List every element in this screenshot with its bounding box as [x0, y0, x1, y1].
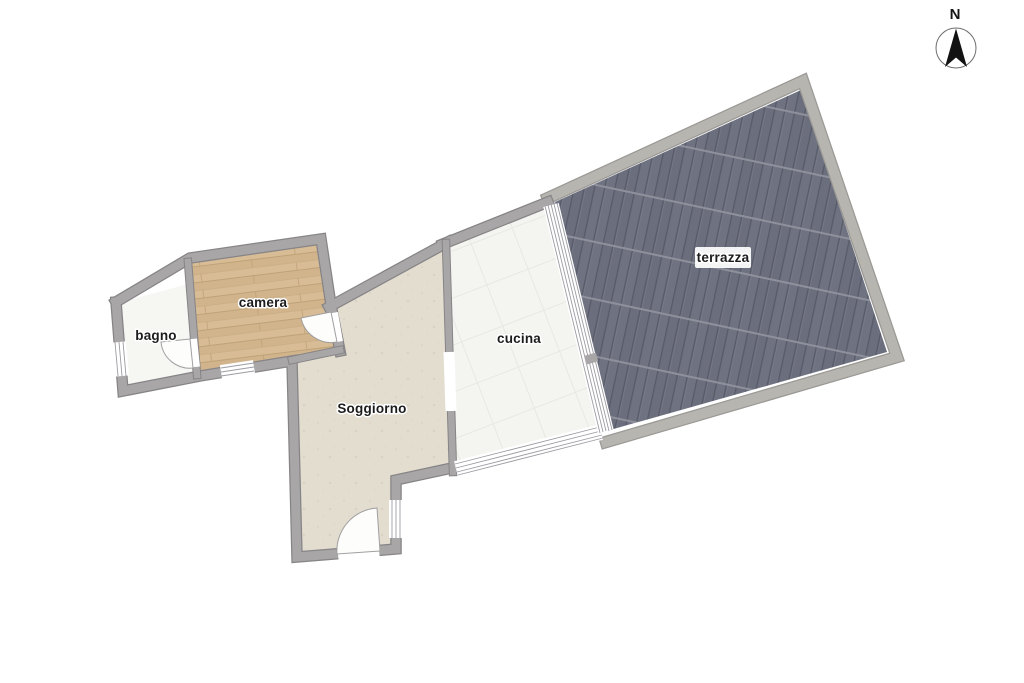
compass-north-letter: N [950, 6, 961, 23]
soggiorno-window [392, 500, 400, 538]
bagno-label: bagno [135, 328, 177, 343]
camera-window [221, 363, 254, 376]
soggiorno-cucina-opening [449, 352, 451, 411]
cucina-label-text: cucina [497, 331, 541, 346]
terrazza-label: terrazza [697, 250, 750, 265]
floor-plan-svg: bagno camera Soggiorno cucina terrazza N [0, 0, 1024, 683]
floor-plan-page: bagno camera Soggiorno cucina terrazza N [0, 0, 1024, 683]
north-compass: N [936, 6, 976, 68]
bagno-window [115, 342, 126, 376]
room-floors [118, 90, 887, 557]
camera-label: camera [239, 295, 288, 310]
glass-wall-jamb [586, 357, 597, 360]
soggiorno-label: Soggiorno [337, 401, 406, 416]
